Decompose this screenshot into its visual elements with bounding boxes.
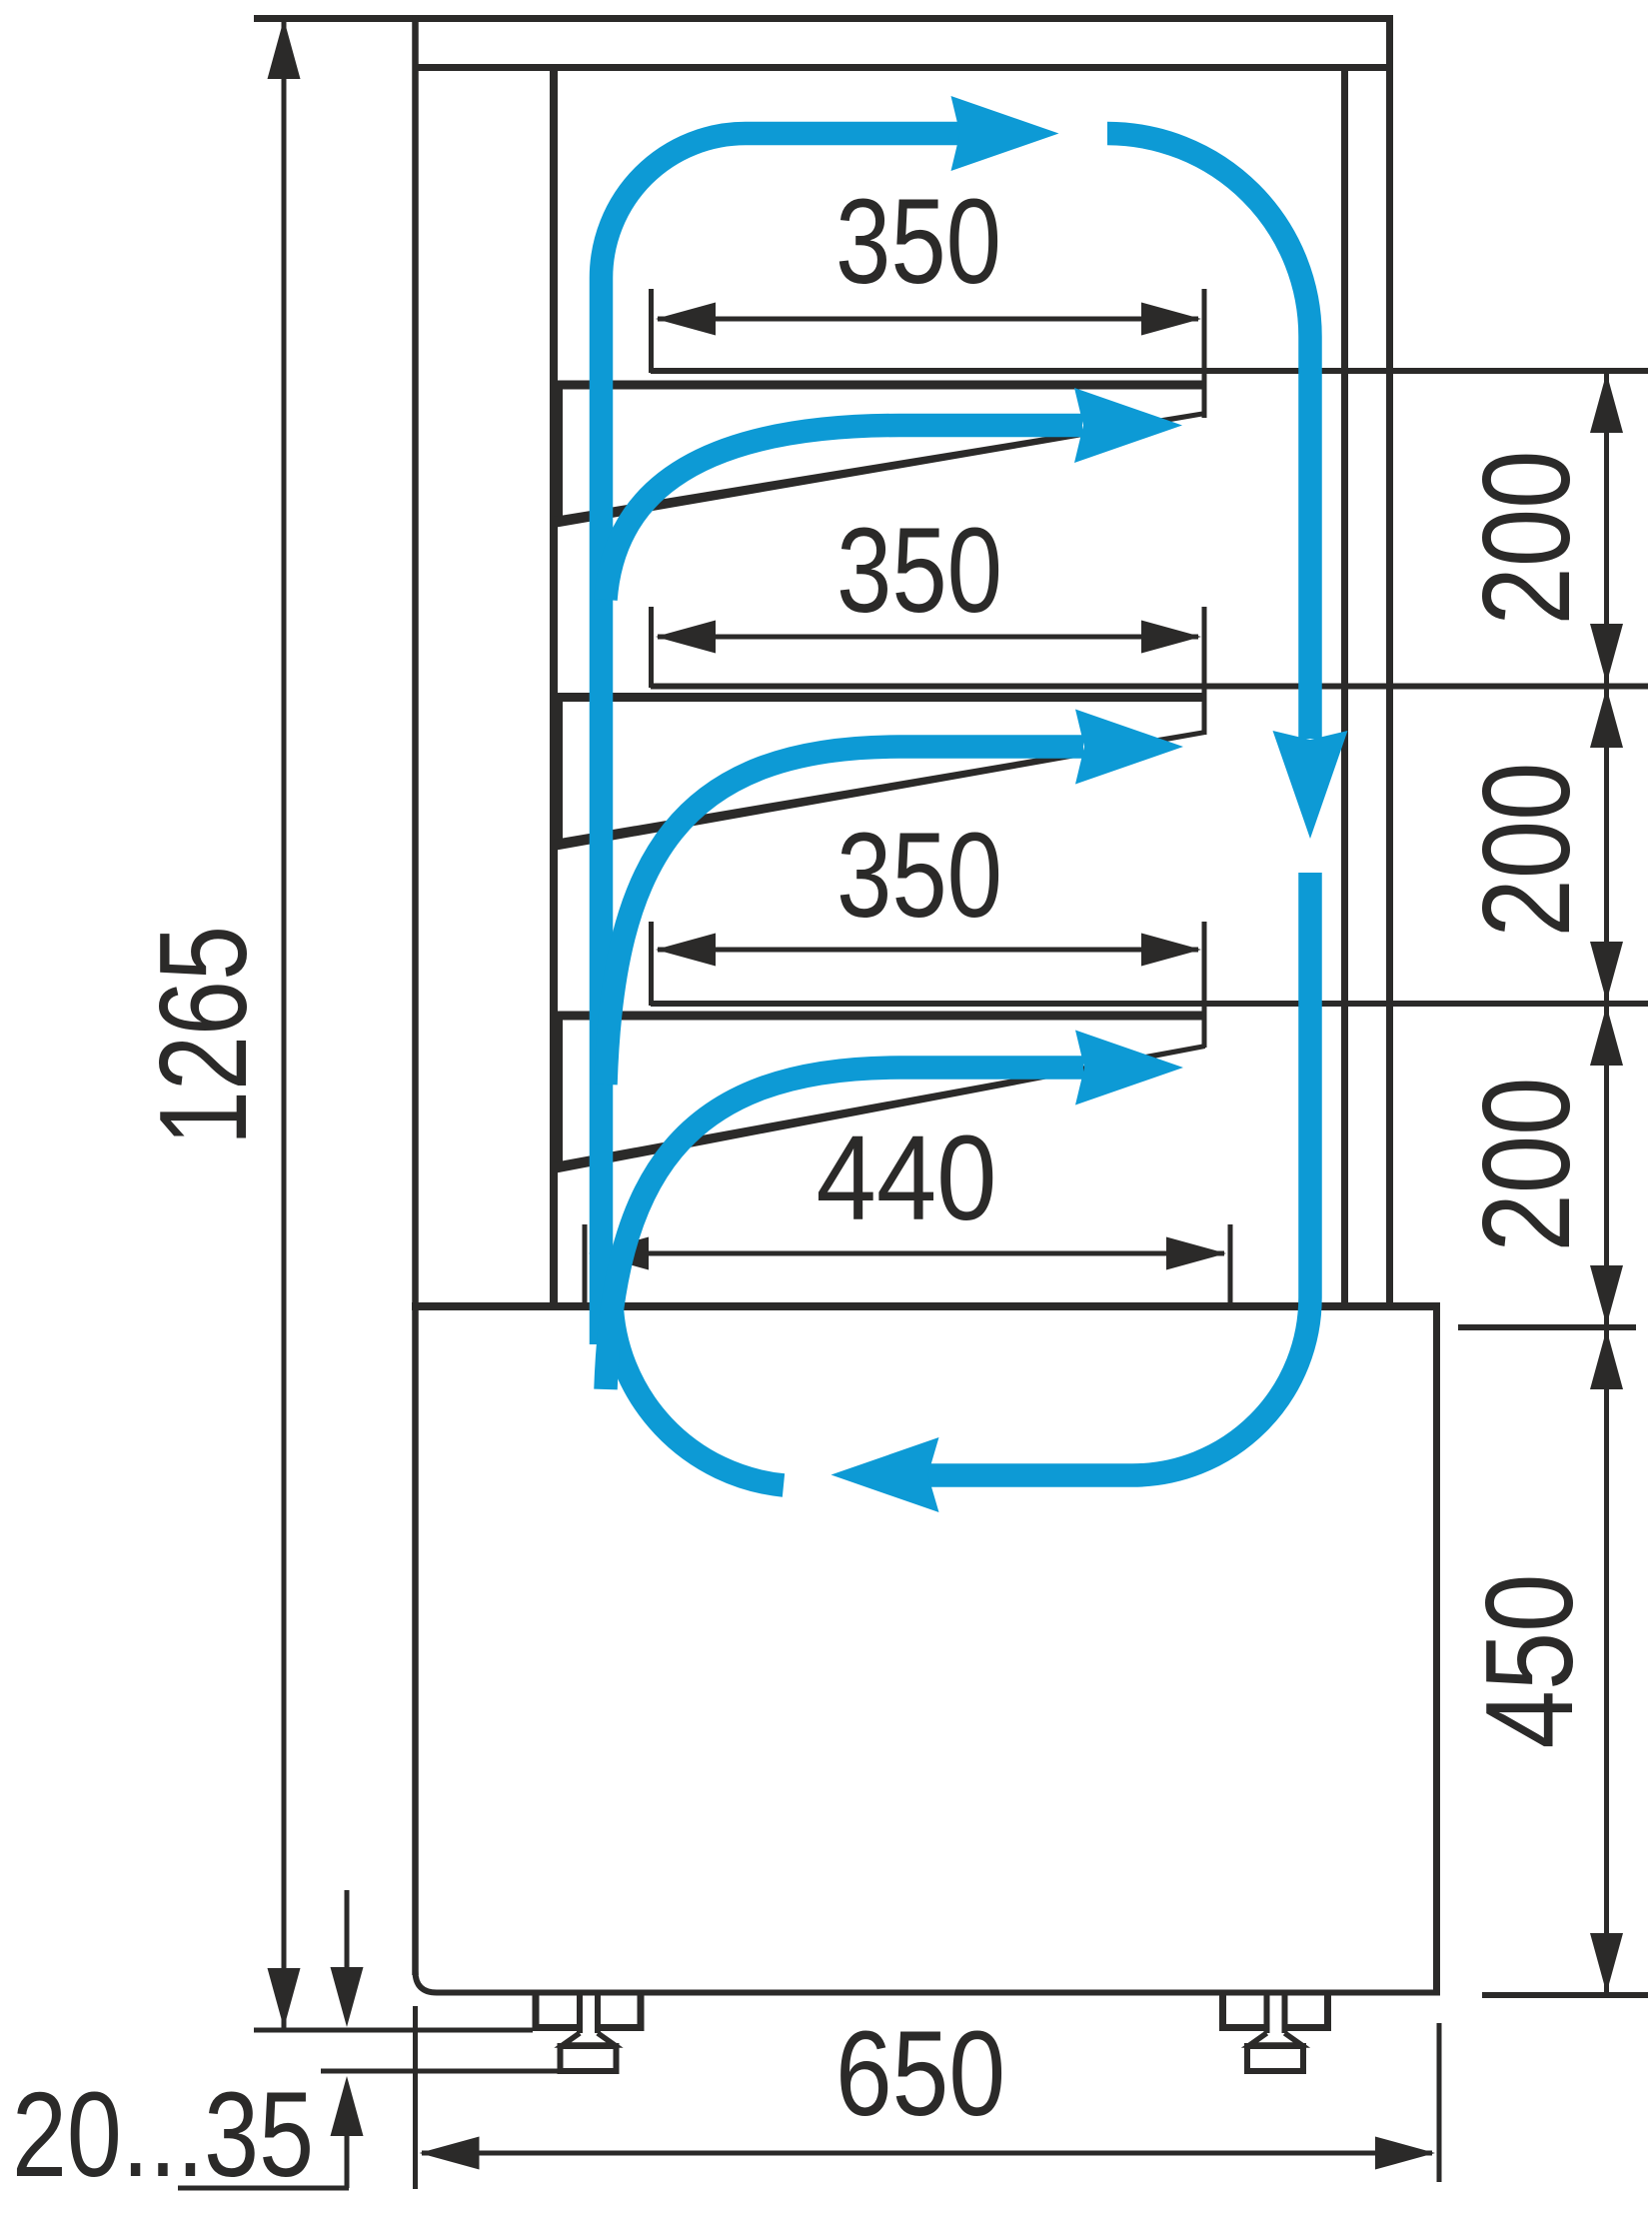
svg-text:200: 200 [1458, 451, 1596, 626]
svg-text:20...35: 20...35 [12, 2066, 314, 2202]
svg-text:440: 440 [817, 1109, 997, 1245]
svg-text:350: 350 [835, 173, 1001, 309]
svg-text:200: 200 [1458, 763, 1596, 938]
svg-text:200: 200 [1458, 1078, 1596, 1252]
svg-text:1265: 1265 [135, 926, 273, 1145]
svg-text:450: 450 [1461, 1574, 1599, 1749]
svg-text:350: 350 [836, 807, 1002, 943]
svg-text:350: 350 [836, 502, 1002, 638]
svg-text:650: 650 [835, 2005, 1005, 2141]
